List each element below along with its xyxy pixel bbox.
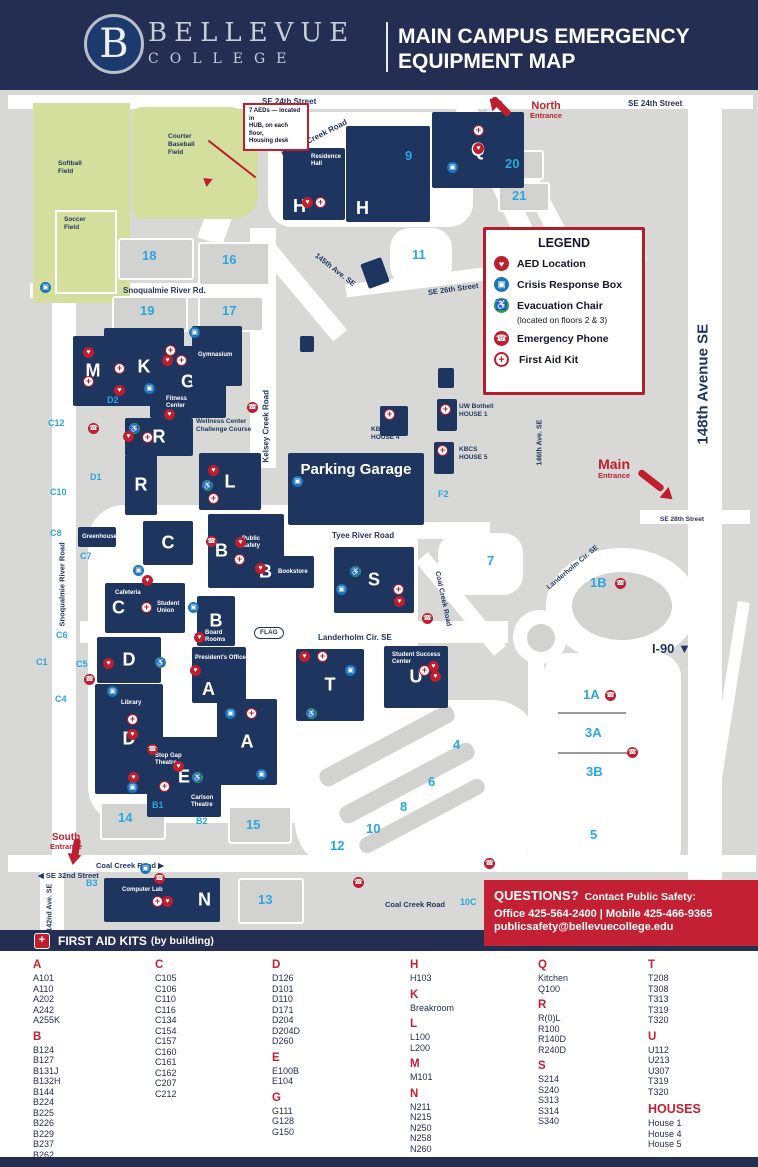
first-aid-kits-title: FIRST AID KITS [58,934,147,948]
first-aid-kit-room: T320 [648,1087,758,1098]
first-aid-kit-room: D204D [272,1026,384,1037]
evacuation-chair-note: (located on floors 2 & 3) [517,315,634,325]
lot-label: C6 [56,630,68,640]
building-letter: T [325,675,336,696]
lot-label: 5 [590,827,597,842]
road [543,653,681,871]
lot-label: 8 [400,799,407,814]
legend-title: LEGEND [494,236,634,250]
first-aid-kit-room: D101 [272,984,384,995]
header-divider [386,22,388,72]
first-aid-kit-room: L100 [410,1032,522,1043]
lot-label: 13 [258,892,272,907]
first-aid-kit-room: Kitchen [538,973,650,984]
first-aid-kit-icon: + [473,125,484,136]
emergency-equipment-map-page: B BELLEVUE COLLEGE MAIN CAMPUS EMERGENCY… [0,0,758,1167]
first-aid-kit-room: G128 [272,1116,384,1127]
first-aid-kit-room: B225 [33,1108,145,1119]
building-group-header: D [272,959,384,971]
first-aid-kit-room: U307 [648,1066,758,1077]
lot-label: 18 [142,248,156,263]
aed-icon: ♥ [494,256,509,271]
street-label: 146th Ave. SE [537,420,544,466]
lot-label: 12 [330,838,344,853]
questions-subtitle: Contact Public Safety: [585,891,696,903]
first-aid-kit-room: S314 [538,1106,650,1117]
questions-title: QUESTIONS? [494,888,579,903]
first-aid-kit-room: C212 [155,1089,267,1100]
first-aid-kit-room: B237 [33,1139,145,1150]
first-aid-kit-room: C154 [155,1026,267,1037]
legend-label: Emergency Phone [517,333,609,345]
lot-label: 16 [222,252,236,267]
first-aid-kit-room: House 1 [648,1118,758,1129]
first-aid-kit-icon: + [114,363,125,374]
emergency-phone-icon: ☎ [605,690,616,701]
first-aid-kit-room: N215 [410,1112,522,1123]
emergency-phone-icon: ☎ [627,747,638,758]
emergency-phone-icon: ☎ [422,613,433,624]
first-aid-column: DD126D101D110D171D204D204DD260EE100BE104… [272,954,384,1137]
first-aid-kit-room: C106 [155,984,267,995]
first-aid-kit-room: T308 [648,984,758,995]
legend-label: AED Location [517,258,586,270]
first-aid-kit-icon: + [246,708,257,719]
aed-icon: ♥ [394,596,405,607]
aed-icon: ♥ [194,632,205,643]
aed-callout-box: 7 AEDs — located in HUB, on each floor, … [243,103,309,151]
building-c: C [143,521,193,565]
public-safety-contact-box: QUESTIONS?Contact Public Safety: Office … [484,880,758,946]
first-aid-kit-room: B224 [33,1097,145,1108]
first-aid-kit-icon: + [317,651,328,662]
lot-label: D1 [90,472,102,482]
lot-label: 1A [583,687,600,702]
first-aid-kit-icon: + [234,554,245,565]
lot-label: 3B [586,764,603,779]
emergency-phone-icon: ☎ [147,744,158,755]
street-label: Coal Creek Road [385,900,445,909]
entrance-sub: Entrance [530,111,562,120]
lot-label: 9 [405,148,412,163]
first-aid-kit-room: R140D [538,1034,650,1045]
lot-label: C4 [55,694,67,704]
lot-label: B2 [196,816,208,826]
crisis-response-box-icon: ▣ [140,863,151,874]
first-aid-kit-room: N250 [410,1123,522,1134]
lot-label: 6 [428,774,435,789]
first-aid-kit-room: C207 [155,1078,267,1089]
crisis-response-box-icon: ▣ [225,708,236,719]
main-entrance-label: MainEntrance [598,456,630,480]
first-aid-kit-room: C105 [155,973,267,984]
first-aid-kit-room: C110 [155,994,267,1005]
aed-icon: ♥ [473,143,484,154]
lot-label: 14 [118,810,132,825]
crisis-response-box-icon: ▣ [336,584,347,595]
building-block [300,336,314,352]
first-aid-kit-icon: + [393,584,404,595]
legend-label: First Aid Kit [519,354,578,366]
building-group-header: U [648,1031,758,1043]
legend-box: LEGEND ♥ AED Location ▣ Crisis Response … [483,227,645,395]
crisis-response-box-icon: ▣ [494,277,509,292]
first-aid-kit-room: G111 [272,1106,384,1117]
emergency-phone-icon: ☎ [484,858,495,869]
aed-icon: ♥ [235,537,246,548]
street-label: Landerholm Cir. SE [318,633,392,642]
first-aid-kit-room: Q100 [538,984,650,995]
building-block [438,368,454,388]
first-aid-kit-room: D126 [272,973,384,984]
first-aid-kit-room: C157 [155,1036,267,1047]
building-sublabel: Fitness Center [166,396,187,410]
first-aid-kit-room: R100 [538,1024,650,1035]
lot-label: 7 [487,553,494,568]
lot-label: C12 [48,418,65,428]
first-aid-column: CC105C106C110C116C134C154C157C160C161C16… [155,954,267,1099]
map-label: Soccer Field [64,216,86,232]
aed-icon: ♥ [208,465,219,476]
building-sublabel: President's Office [195,655,246,662]
street-label: Tyee River Road [332,531,394,540]
emergency-phone-icon: ☎ [154,873,165,884]
first-aid-kit-room: S340 [538,1116,650,1127]
crisis-response-box-icon: ▣ [256,769,267,780]
street-label: Snoqualmie River Rd. [123,286,206,295]
aed-callout-text: 7 AEDs — located in HUB, on each floor, … [249,108,303,146]
first-aid-kit-room: A202 [33,994,145,1005]
street-label: 148th Avenue SE [695,324,712,445]
building-letter: R [153,427,166,448]
brand-line1: BELLEVUE [148,18,355,48]
emergency-phone-icon: ☎ [206,536,217,547]
aed-icon: ♥ [190,665,201,676]
first-aid-kit-room: B132H [33,1076,145,1087]
building-letter: L [225,471,236,492]
building-block: Greenhouse [78,527,116,547]
street-label: SE 24th Street [628,99,682,108]
lot-divider [558,712,626,714]
aed-icon: ♥ [162,896,173,907]
crisis-response-box-icon: ▣ [447,162,458,173]
first-aid-column: HH103KBreakroomLL100L200MM101NN211N215N2… [410,954,522,1154]
evacuation-chair-icon: ♿ [192,772,203,783]
logo-letter: B [99,24,128,64]
aed-icon: ♥ [302,197,313,208]
bellevue-college-logo: B [84,14,144,74]
lot-label: D2 [107,395,119,405]
first-aid-kits-title-suffix: (by building) [151,935,214,947]
first-aid-kit-room: C160 [155,1047,267,1058]
first-aid-kit-room: E100B [272,1066,384,1077]
aed-icon: ♥ [164,409,175,420]
aed-icon: ♥ [123,431,134,442]
building-a: APresident's Office [192,647,246,703]
lot-label: 4 [453,737,460,752]
map-label: FLAG [254,627,284,639]
emergency-phone-icon: ☎ [247,402,258,413]
emergency-phone-icon: ☎ [84,674,95,685]
evacuation-chair-icon: ♿ [306,708,317,719]
aed-icon: ♥ [114,385,125,396]
lot-divider [558,752,636,754]
first-aid-kit-icon: + [141,602,152,613]
aed-icon: ♥ [299,651,310,662]
street-label: Snoqualmie River Road [58,542,67,626]
roundabout-island [527,624,555,652]
map-label: Softball Field [58,160,82,176]
first-aid-kit-room: Breakroom [410,1003,522,1014]
first-aid-kit-room: B131J [33,1066,145,1077]
first-aid-kit-room: N258 [410,1133,522,1144]
road [438,533,523,595]
lot-label: B1 [152,800,164,810]
legend-label: Evacuation Chair [517,300,603,312]
first-aid-kit-room: S240 [538,1085,650,1096]
first-aid-kit-room: S214 [538,1074,650,1085]
building-group-header: E [272,1052,384,1064]
building-letter: K [138,357,151,378]
legend-label: Crisis Response Box [517,279,622,291]
building-group-header: K [410,989,522,1001]
first-aid-kit-room: A255K [33,1015,145,1026]
lot-label: 11 [412,247,426,262]
aed-icon: ♥ [142,575,153,586]
building-letter: A [202,679,215,700]
evacuation-chair-icon: ♿ [202,480,213,491]
building-group-header: HOUSES [648,1102,758,1116]
first-aid-kit-room: A110 [33,984,145,995]
first-aid-kit-room: T313 [648,994,758,1005]
emergency-phone-icon: ☎ [88,423,99,434]
building-letter: B [215,541,228,562]
lot-label: B3 [86,878,98,888]
first-aid-kit-room: B229 [33,1129,145,1140]
first-aid-kit-icon: + [176,355,187,366]
building-group-header: G [272,1092,384,1104]
first-aid-kit-icon: + [142,432,153,443]
building-group-header: M [410,1058,522,1070]
building-group-header: A [33,959,145,971]
street-label: SE 28th Street [660,516,704,523]
evacuation-chair-icon: ♿ [350,566,361,577]
first-aid-kit-room: A242 [33,1005,145,1016]
first-aid-kit-room: C134 [155,1015,267,1026]
building-h: HResidence Hall [283,148,345,220]
crisis-response-box-icon: ▣ [189,327,200,338]
evacuation-chair-icon: ♿ [494,298,509,313]
entrance-name: Main [598,456,630,472]
crisis-response-box-icon: ▣ [188,602,199,613]
first-aid-kit-icon: + [384,409,395,420]
map-label: Wellness Center Challenge Course [196,418,251,434]
building-sublabel: Residence Hall [311,154,341,168]
street-label: 142nd Ave. SE [47,884,54,932]
building-letter: C [162,533,175,554]
lot-label: 15 [246,817,260,832]
entrance-sub: Entrance [598,471,630,480]
first-aid-kit-room: R(0)L [538,1013,650,1024]
map-label: Courter Baseball Field [168,133,195,156]
building-letter: S [368,570,380,591]
first-aid-kit-room: House 5 [648,1139,758,1150]
building-letter: N [198,890,211,911]
lot-label: 1B [590,575,607,590]
lot-label: 10C [460,897,477,907]
first-aid-kit-icon: + [159,781,170,792]
brand-line2: COLLEGE [148,51,355,67]
public-safety-phones: Office 425-564-2400 | Mobile 425-466-936… [494,908,748,920]
building-group-header: T [648,959,758,971]
first-aid-kit-room: N211 [410,1102,522,1113]
first-aid-kit-room: C116 [155,1005,267,1016]
building-group-header: R [538,999,650,1011]
emergency-phone-icon: ☎ [494,331,509,346]
aed-icon: ♥ [162,355,173,366]
emergency-phone-icon: ☎ [353,877,364,888]
building-sublabel: Carlson Theatre [191,795,213,809]
page-title-line1: MAIN CAMPUS EMERGENCY [398,24,690,49]
first-aid-kit-room: S313 [538,1095,650,1106]
first-aid-kit-room: B226 [33,1118,145,1129]
aed-icon: ♥ [173,761,184,772]
building-r: R [125,455,157,515]
first-aid-column: AA101A110A202A242A255KBB124B127B131JB132… [33,954,145,1160]
first-aid-kit-room: U112 [648,1045,758,1056]
first-aid-kit-room: B144 [33,1087,145,1098]
building-letter: D [123,650,136,671]
crisis-response-box-icon: ▣ [107,686,118,697]
building-letter: R [135,475,148,496]
building-letter: A [241,732,254,753]
first-aid-kit-room: D110 [272,994,384,1005]
building-letter: H [356,198,369,219]
aed-icon: ♥ [83,347,94,358]
aed-icon: ♥ [127,729,138,740]
building-sublabel: Computer Lab [122,887,163,894]
lot-label: 3A [585,725,602,740]
building-group-header: C [155,959,267,971]
first-aid-kit-icon: + [440,404,451,415]
first-aid-kit-room: E104 [272,1076,384,1087]
first-aid-kit-room: H103 [410,973,522,984]
first-aid-kit-room: B124 [33,1045,145,1056]
building-group-header: Q [538,959,650,971]
legend-item-crisis-response-box: ▣ Crisis Response Box [494,277,634,292]
street-label: Coal Creek Road ▶ [96,861,164,870]
legend-item-emergency-phone: ☎ Emergency Phone [494,331,634,346]
building-sublabel: Gymnasium [198,352,232,359]
map-label: UW Bothell HOUSE 1 [459,403,494,419]
first-aid-kit-room: T320 [648,1015,758,1026]
building-letter: B [210,611,223,632]
first-aid-kit-icon: + [83,376,94,387]
page-title-line2: EQUIPMENT MAP [398,49,690,74]
brand-name: BELLEVUE COLLEGE [148,18,355,67]
lot-label: 20 [505,156,519,171]
legend-item-aed: ♥ AED Location [494,256,634,271]
first-aid-kit-room: M101 [410,1072,522,1083]
crisis-response-box-icon: ▣ [292,476,303,487]
first-aid-kit-room: T208 [648,973,758,984]
first-aid-kit-room: C162 [155,1068,267,1079]
lot-label: C10 [50,487,67,497]
first-aid-kit-room: T319 [648,1076,758,1087]
crisis-response-box-icon: ▣ [127,782,138,793]
first-aid-kit-icon: + [208,493,219,504]
building-parking-garage: Parking Garage [288,453,424,525]
building-group-header: N [410,1088,522,1100]
building-sublabel: Student Union [157,601,179,615]
first-aid-cross-icon: + [34,933,50,949]
first-aid-kit-icon: + [127,714,138,725]
first-aid-kit-room: D260 [272,1036,384,1047]
page-title: MAIN CAMPUS EMERGENCY EQUIPMENT MAP [398,24,690,74]
building-sublabel: Greenhouse [82,534,117,541]
lot-label: C8 [50,528,62,538]
first-aid-kit-room: R240D [538,1045,650,1056]
first-aid-kit-room: U213 [648,1055,758,1066]
first-aid-kit-room: B127 [33,1055,145,1066]
first-aid-kit-room: C161 [155,1057,267,1068]
street-label: I-90 ▼ [652,641,691,656]
building-sublabel: Cafeteria [115,590,141,597]
building-h: H [346,126,430,222]
public-safety-email: publicsafety@bellevuecollege.edu [494,921,748,933]
lot-label: C1 [36,657,48,667]
first-aid-kit-room: House 4 [648,1129,758,1140]
building-group-header: B [33,1031,145,1043]
legend-item-first-aid-kit: + First Aid Kit [494,352,634,367]
lot-label: 10 [366,821,380,836]
lot-label: 21 [512,188,526,203]
legend-item-evacuation-chair: ♿ Evacuation Chair [494,298,634,313]
first-aid-kit-room: D171 [272,1005,384,1016]
first-aid-kit-room: T319 [648,1005,758,1016]
building-sublabel: Board Rooms [205,630,225,644]
building-group-header: H [410,959,522,971]
first-aid-kit-icon: + [437,445,448,456]
crisis-response-box-icon: ▣ [40,282,51,293]
building-group-header: L [410,1018,522,1030]
first-aid-kit-room: N260 [410,1144,522,1155]
lot-label: C5 [76,659,88,669]
first-aid-kit-icon: + [315,197,326,208]
first-aid-kit-room: L200 [410,1043,522,1054]
map-label: KBCS HOUSE 5 [459,446,488,462]
lot-label: F2 [438,489,449,499]
lot-label: 17 [222,303,236,318]
building-sublabel: Bookstore [278,569,308,576]
crisis-response-box-icon: ▣ [144,383,155,394]
header: B BELLEVUE COLLEGE MAIN CAMPUS EMERGENCY… [0,0,758,90]
building-sublabel: Library [121,700,141,707]
lot-label: 19 [140,303,154,318]
first-aid-kit-room: D204 [272,1015,384,1026]
first-aid-column: QKitchenQ100RR(0)LR100R140DR240DSS214S24… [538,954,650,1127]
first-aid-column: TT208T308T313T319T320UU112U213U307T319T3… [648,954,758,1164]
building-block: Gymnasium [192,326,242,386]
building-group-header: S [538,1060,650,1072]
street-label: Kelsey Creek Road [262,390,271,462]
aed-icon: ♥ [255,563,266,574]
bottom-bar [0,1157,758,1167]
aed-icon: ♥ [103,658,114,669]
building-letter: C [112,598,125,619]
emergency-phone-icon: ☎ [615,578,626,589]
building-name: Parking Garage [288,461,424,478]
